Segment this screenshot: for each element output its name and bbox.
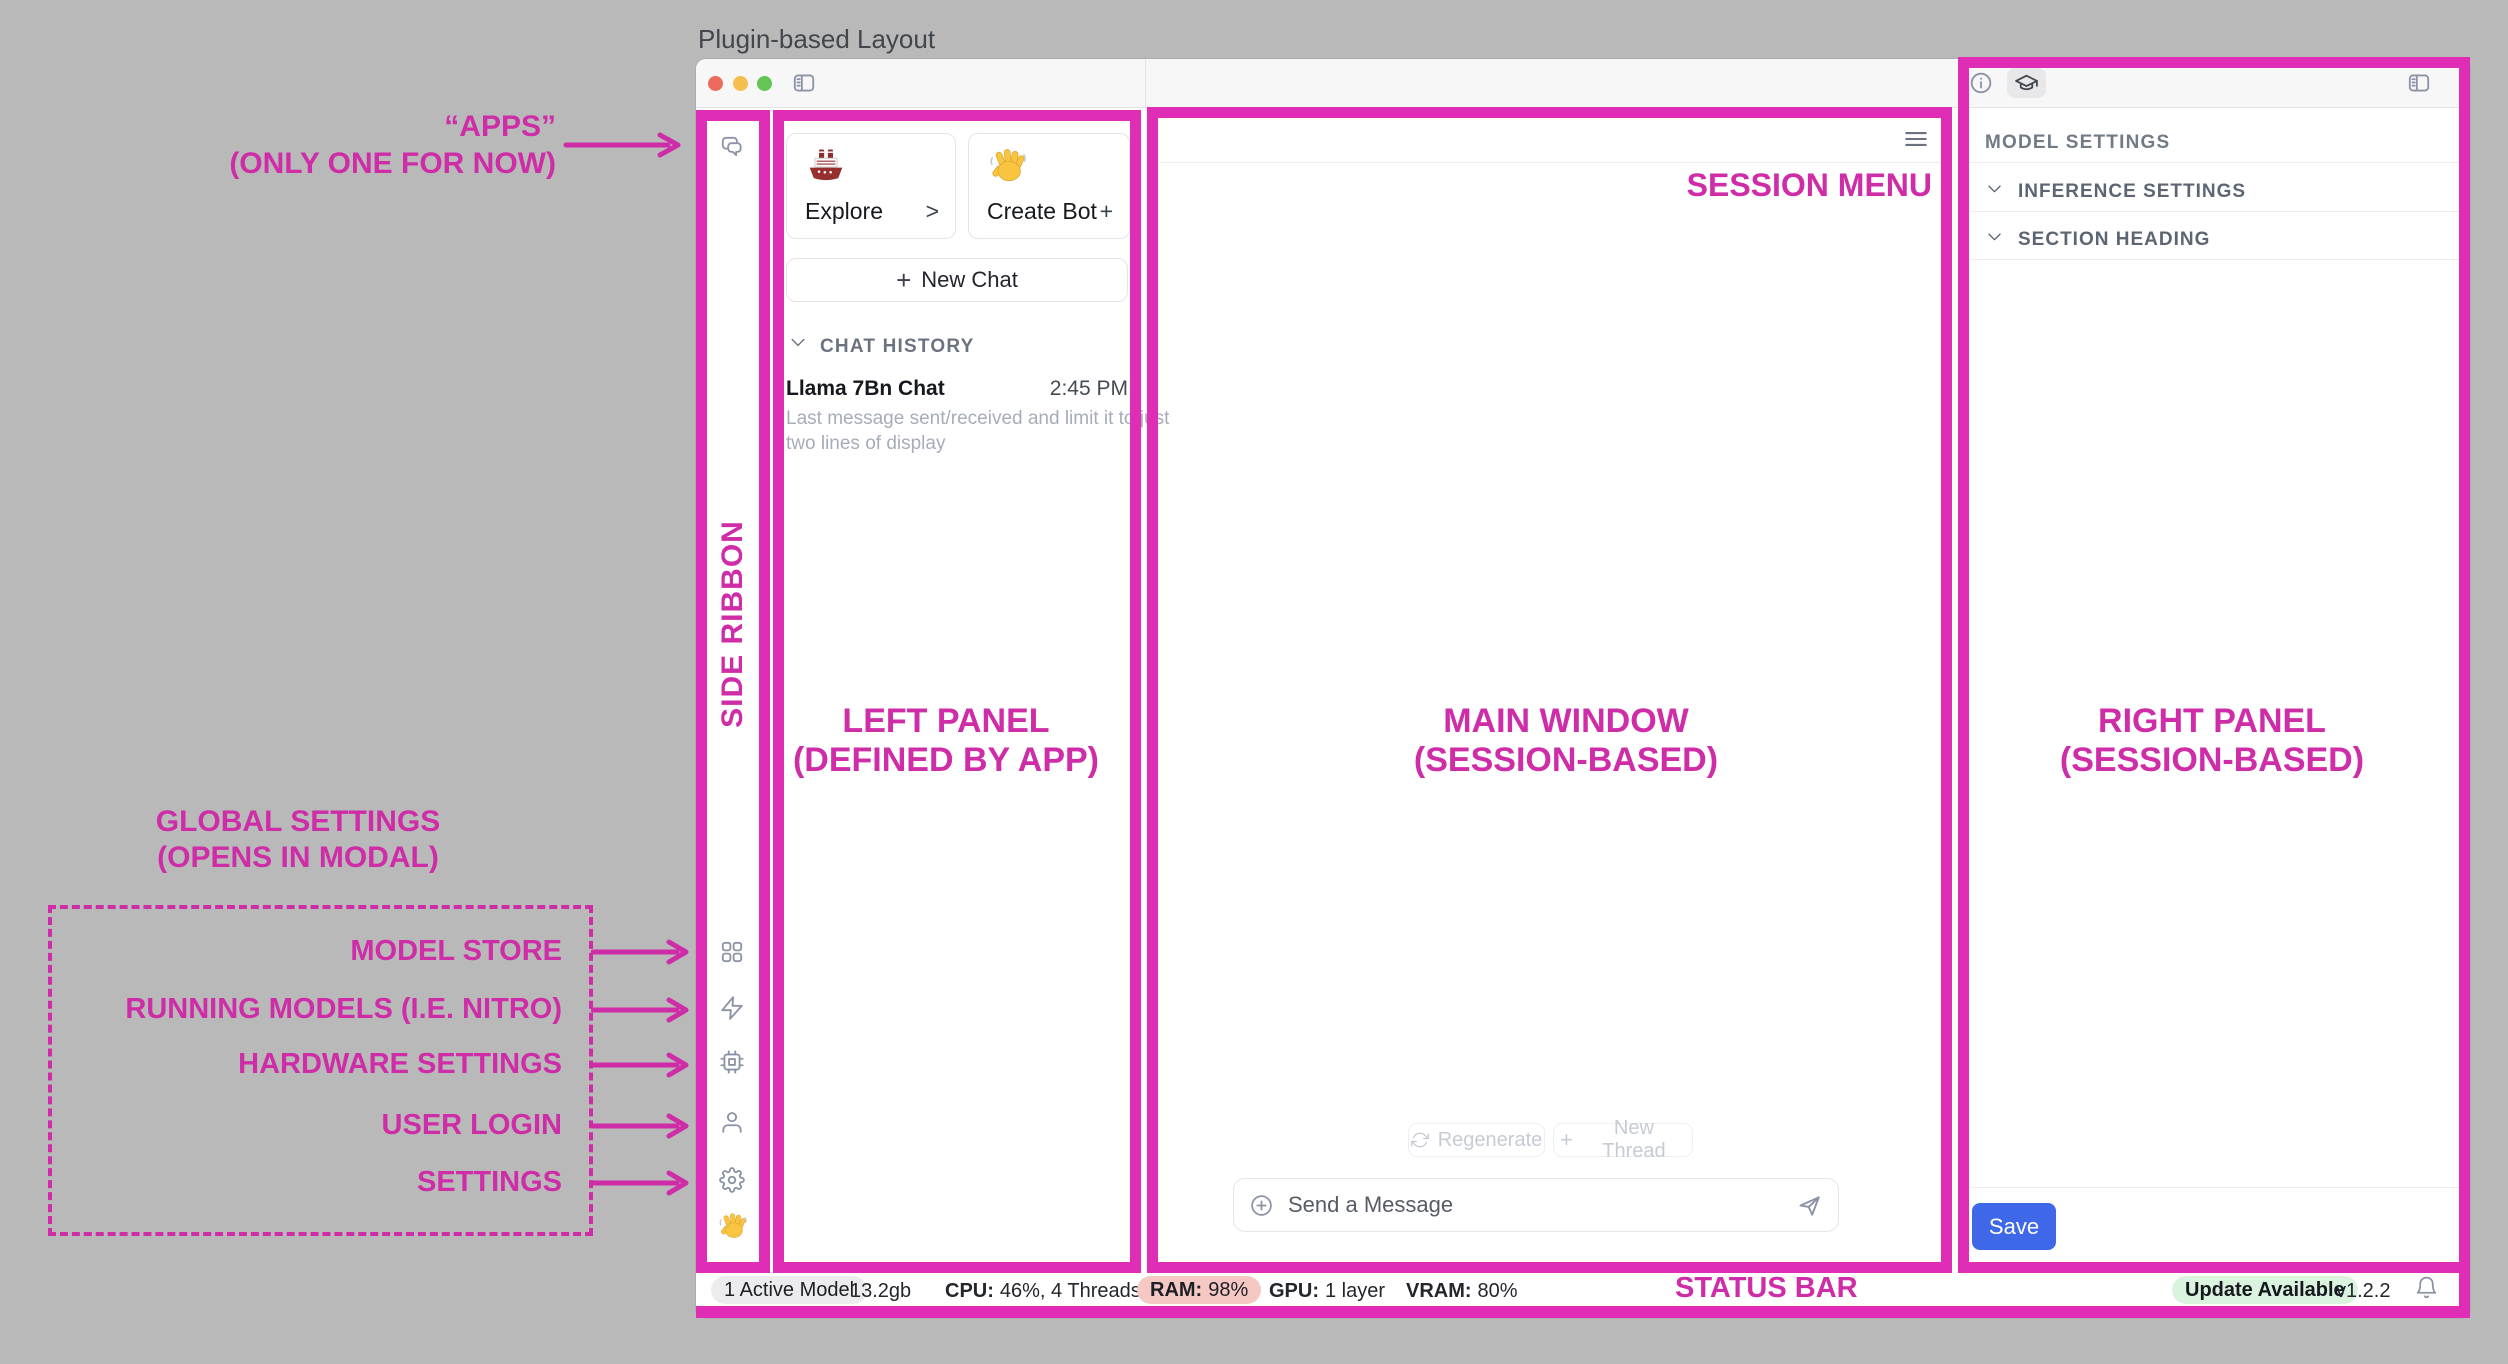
right-panel-annotation: RIGHT PANEL (SESSION-BASED) (2012, 702, 2412, 780)
plus-icon: + (1560, 1127, 1573, 1153)
attach-plus-circle-icon[interactable] (1249, 1193, 1274, 1218)
vram-label: VRAM: (1406, 1280, 1472, 1302)
graduation-cap-icon[interactable] (2014, 71, 2039, 96)
close-traffic-light[interactable] (708, 76, 723, 91)
info-icon[interactable] (1968, 70, 1994, 96)
cpu-value: 46%, 4 Threads (1000, 1280, 1141, 1302)
apps-annotation: “APPS” (ONLY ONE FOR NOW) (229, 108, 556, 182)
sidebar-toggle-icon[interactable] (791, 70, 817, 96)
page-title: Plugin-based Layout (698, 24, 935, 55)
apps-arrow (563, 131, 687, 164)
vram-value: 80% (1478, 1280, 1518, 1302)
update-available-badge[interactable]: Update Available (2172, 1276, 2358, 1304)
settings-gear-icon[interactable] (719, 1167, 745, 1193)
chat-item-title[interactable]: Llama 7Bn Chat (786, 377, 945, 401)
explore-chevron: > (926, 198, 939, 225)
gpu-label: GPU: (1269, 1280, 1319, 1302)
running-models-arrow (591, 997, 691, 1028)
section-heading-section[interactable]: SECTION HEADING (2018, 229, 2210, 251)
plus-icon: + (896, 265, 911, 296)
chat-item-preview-line1: Last message sent/received and limit it … (786, 408, 1169, 430)
wave-hand-emoji-icon[interactable] (717, 1211, 749, 1248)
new-chat-button[interactable]: + New Chat (786, 258, 1128, 302)
version-text: v1.2.2 (2336, 1280, 2390, 1303)
right-panel-annotation-line2: (SESSION-BASED) (2012, 741, 2412, 780)
status-bar-annotation: STATUS BAR (1675, 1272, 1858, 1305)
active-model-badge: 1 Active Model (711, 1276, 867, 1304)
window-titlebar (696, 59, 2470, 108)
user-login-icon[interactable] (719, 1109, 745, 1135)
divider (1969, 259, 2459, 260)
save-button[interactable]: Save (1972, 1203, 2056, 1250)
app-window: Explore > (696, 59, 2470, 1318)
vram-status: VRAM:80% (1406, 1280, 1518, 1303)
settings-arrow (591, 1170, 691, 1201)
send-icon[interactable] (1796, 1192, 1823, 1219)
status-bar-underline (696, 1306, 2470, 1318)
create-bot-card[interactable]: Create Bot + (968, 133, 1130, 239)
divider (1969, 162, 2459, 163)
main-window-annotation-line2: (SESSION-BASED) (1366, 741, 1766, 780)
minimize-traffic-light[interactable] (733, 76, 748, 91)
bell-icon[interactable] (2414, 1275, 2439, 1300)
new-thread-label: New Thread (1582, 1117, 1686, 1163)
explore-label: Explore (805, 198, 883, 225)
design-canvas: Plugin-based Layout (0, 0, 2508, 1364)
model-settings-heading: MODEL SETTINGS (1985, 132, 2170, 154)
model-store-arrow (591, 939, 691, 970)
create-bot-plus: + (1100, 198, 1113, 225)
hardware-settings-annotation: HARDWARE SETTINGS (238, 1048, 562, 1081)
ram-status-badge: RAM:98% (1137, 1276, 1261, 1304)
ram-value: 98% (1208, 1279, 1248, 1302)
inference-settings-section[interactable]: INFERENCE SETTINGS (2018, 181, 2246, 203)
message-input-box (1233, 1178, 1839, 1232)
left-panel-annotation-line2: (DEFINED BY APP) (766, 741, 1126, 780)
global-settings-annotation-line2: (OPENS IN MODAL) (128, 840, 468, 876)
chat-item-preview-line2: two lines of display (786, 433, 945, 455)
hardware-settings-arrow (591, 1052, 691, 1083)
chevron-down-icon[interactable] (1985, 227, 2004, 246)
hardware-chip-icon[interactable] (719, 1049, 745, 1075)
gpu-value: 1 layer (1325, 1280, 1385, 1302)
new-chat-label: New Chat (921, 267, 1018, 293)
user-login-arrow (591, 1113, 691, 1144)
hamburger-menu-icon[interactable] (1903, 126, 1929, 152)
chevron-down-icon[interactable] (1985, 179, 2004, 198)
left-panel-annotation-line1: LEFT PANEL (766, 702, 1126, 741)
main-header-divider (1160, 162, 1941, 163)
send-message-input[interactable] (1286, 1191, 1786, 1219)
model-store-grid-icon[interactable] (719, 939, 745, 965)
left-panel-annotation: LEFT PANEL (DEFINED BY APP) (766, 702, 1126, 780)
cpu-status: CPU:46%, 4 Threads (945, 1280, 1141, 1303)
main-window-annotation: MAIN WINDOW (SESSION-BASED) (1366, 702, 1766, 780)
sidebar-toggle-icon[interactable] (2406, 70, 2432, 96)
running-models-lightning-icon[interactable] (719, 995, 745, 1021)
create-bot-label: Create Bot (987, 198, 1097, 225)
session-menu-annotation: SESSION MENU (1687, 167, 1932, 204)
apps-annotation-line1: “APPS” (229, 108, 556, 145)
titlebar-divider (1145, 59, 1146, 107)
chevron-down-icon[interactable] (788, 332, 808, 352)
global-settings-annotation-line1: GLOBAL SETTINGS (128, 804, 468, 840)
new-thread-button[interactable]: + New Thread (1553, 1123, 1693, 1157)
explore-card[interactable]: Explore > (786, 133, 956, 239)
main-window-annotation-line1: MAIN WINDOW (1366, 702, 1766, 741)
footer-divider (1969, 1187, 2459, 1188)
global-settings-annotation: GLOBAL SETTINGS (OPENS IN MODAL) (128, 804, 468, 876)
chat-item-time: 2:45 PM (1028, 377, 1128, 401)
chat-app-icon[interactable] (719, 134, 745, 160)
regenerate-button[interactable]: Regenerate (1408, 1123, 1545, 1157)
refresh-icon (1411, 1131, 1429, 1149)
running-models-annotation: RUNNING MODELS (I.E. NITRO) (125, 993, 562, 1026)
right-edge-connector (2459, 1273, 2470, 1318)
regenerate-label: Regenerate (1438, 1129, 1543, 1152)
apps-annotation-line2: (ONLY ONE FOR NOW) (229, 145, 556, 182)
wave-hand-emoji-icon (987, 146, 1029, 193)
right-panel-annotation-line1: RIGHT PANEL (2012, 702, 2412, 741)
gpu-status: GPU:1 layer (1269, 1280, 1385, 1303)
chat-history-header[interactable]: CHAT HISTORY (820, 336, 974, 358)
ram-label: RAM: (1150, 1279, 1202, 1302)
side-ribbon-annotation: SIDE RIBBON (716, 492, 750, 756)
maximize-traffic-light[interactable] (757, 76, 772, 91)
user-login-annotation: USER LOGIN (382, 1109, 562, 1142)
settings-annotation: SETTINGS (417, 1166, 562, 1199)
divider (1969, 211, 2459, 212)
cpu-label: CPU: (945, 1280, 994, 1302)
model-size-text: 13.2gb (850, 1280, 911, 1303)
model-store-annotation: MODEL STORE (350, 935, 562, 968)
ship-emoji-icon (805, 146, 847, 193)
